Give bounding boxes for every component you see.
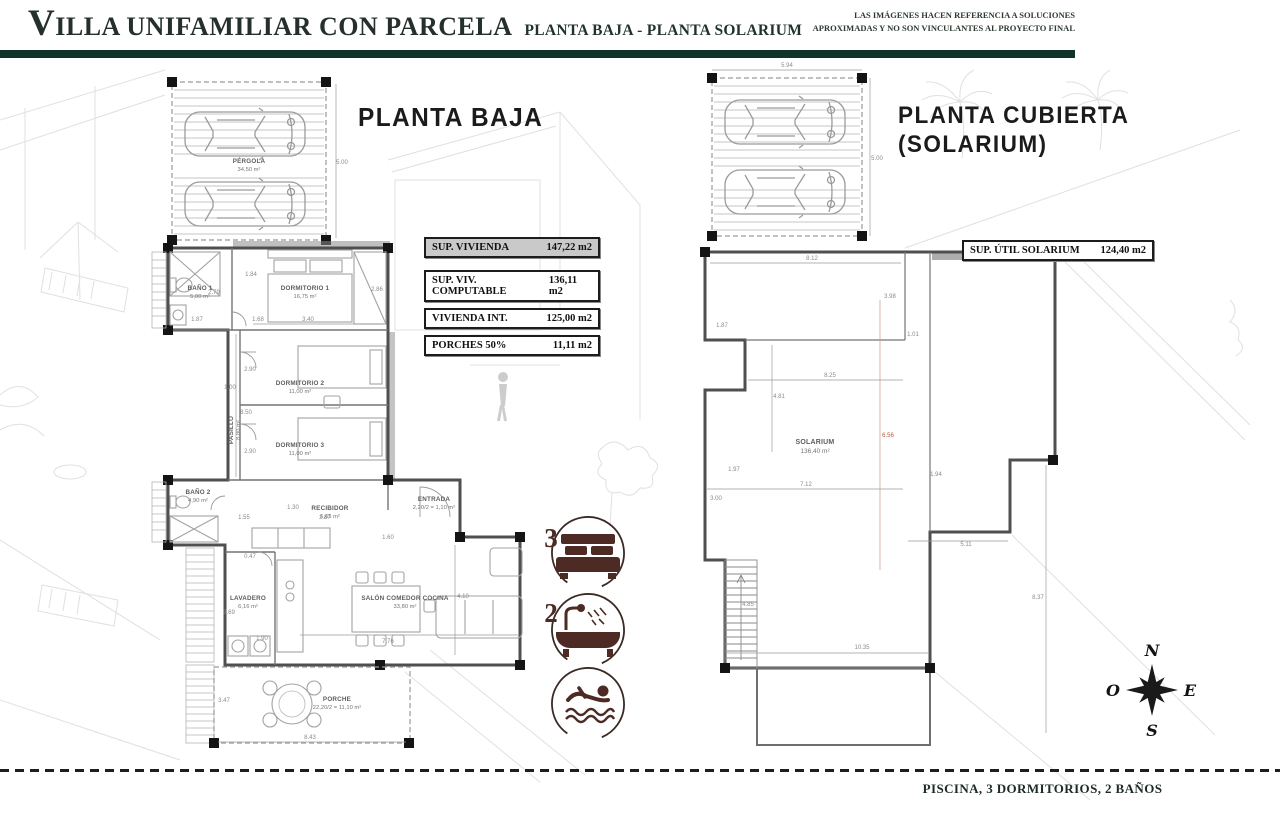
svg-text:8.50: 8.50 [240, 410, 252, 416]
svg-text:1.94: 1.94 [930, 472, 942, 478]
swimmer-icon [566, 686, 614, 723]
svg-text:7.12: 7.12 [800, 482, 812, 488]
carport-pergola-solarium [707, 70, 870, 241]
svg-text:1.68: 1.68 [252, 317, 264, 323]
svg-text:3.00: 3.00 [710, 496, 722, 502]
svg-text:8,80 m²: 8,80 m² [236, 420, 242, 440]
row-label: SUP. ÚTIL SOLARIUM [970, 245, 1080, 256]
compass-north: N [1144, 641, 1161, 660]
bed-icon [556, 534, 620, 579]
room-label: ENTRADA [418, 496, 450, 503]
svg-text:16,75 m²: 16,75 m² [294, 294, 317, 300]
bedrooms-count: 3 [544, 523, 558, 553]
car-icon [725, 96, 845, 148]
svg-text:6,16 m²: 6,16 m² [238, 604, 258, 610]
svg-text:2.86: 2.86 [371, 287, 383, 293]
svg-text:8.12: 8.12 [806, 256, 818, 262]
person-sketch [497, 372, 508, 421]
room-label: RECIBIDOR [311, 505, 348, 512]
dimension-lines [218, 324, 518, 742]
room-label: SALÓN COMEDOR COCINA [361, 593, 449, 602]
solarium-walls [700, 247, 1058, 745]
svg-text:8.37: 8.37 [1032, 595, 1044, 601]
compass-east: E [1183, 681, 1197, 700]
svg-text:6.56: 6.56 [882, 433, 894, 439]
svg-text:2.90: 2.90 [244, 367, 256, 373]
svg-text:2.90: 2.90 [244, 449, 256, 455]
svg-text:8.43: 8.43 [304, 735, 316, 741]
compass-south: S [1146, 721, 1158, 740]
title-initial: V [28, 3, 55, 44]
dimension-lines [707, 263, 1046, 733]
svg-text:10.35: 10.35 [854, 645, 870, 651]
svg-text:2.87: 2.87 [319, 515, 331, 521]
svg-text:5.94: 5.94 [781, 63, 793, 69]
room-label: DORMITORIO 2 [276, 380, 325, 387]
svg-text:5.00: 5.00 [871, 156, 883, 162]
feature-icons: 3 2 [538, 503, 638, 754]
disclaimer-line-1: LAS IMÁGENES HACEN REFERENCIA A SOLUCION… [775, 9, 1075, 22]
room-label: PASILLO [228, 416, 235, 444]
bathrooms-feature: 2 [538, 580, 638, 680]
row-value: 124,40 m2 [1101, 245, 1147, 256]
pool-feature [538, 654, 638, 754]
row-value: 136,11 m2 [549, 275, 592, 297]
svg-text:1.87: 1.87 [191, 317, 203, 323]
row-value: 147,22 m2 [547, 242, 593, 253]
row-label: PORCHES 50% [432, 340, 506, 351]
svg-text:1.97: 1.97 [728, 467, 740, 473]
svg-text:7.76: 7.76 [382, 639, 394, 645]
svg-text:3.98: 3.98 [884, 294, 896, 300]
solarium-title-line-2: (SOLARIUM) [898, 131, 1129, 160]
solarium-title: PLANTA CUBIERTA (SOLARIUM) [898, 102, 1129, 160]
svg-text:4,90 m²: 4,90 m² [188, 498, 208, 504]
svg-text:1.30: 1.30 [287, 505, 299, 511]
title-rest: ILLA UNIFAMILIAR CON PARCELA [55, 12, 512, 41]
room-label: DORMITORIO 1 [281, 285, 330, 292]
svg-text:3.40: 3.40 [302, 317, 314, 323]
row-label: VIVIENDA INT. [432, 313, 508, 324]
document-title: VILLA UNIFAMILIAR CON PARCELAPLANTA BAJA… [28, 4, 802, 44]
svg-text:136,40 m²: 136,40 m² [800, 448, 830, 455]
svg-text:5,00 m²: 5,00 m² [190, 294, 210, 300]
svg-text:5.11: 5.11 [960, 542, 972, 548]
solarium-plan: SOLARIUM 136,40 m² 5.94 5.00 8.12 3.98 1… [700, 63, 1058, 745]
svg-text:2.69: 2.69 [223, 610, 235, 616]
svg-text:2,20/2 = 1,10 m²: 2,20/2 = 1,10 m² [413, 505, 455, 511]
room-labels: SOLARIUM 136,40 m² [796, 439, 835, 455]
svg-text:4.81: 4.81 [773, 394, 785, 400]
car-icon [185, 108, 305, 160]
room-label: LAVADERO [230, 595, 266, 602]
table-row: SUP. VIVIENDA 147,22 m2 [424, 237, 600, 258]
row-value: 125,00 m2 [547, 313, 593, 324]
svg-text:3.47: 3.47 [218, 698, 230, 704]
svg-text:1.87: 1.87 [716, 323, 728, 329]
table-row: SUP. ÚTIL SOLARIUM 124,40 m2 [962, 240, 1154, 261]
bedrooms-feature: 3 [538, 503, 638, 603]
disclaimer-line-2: APROXIMADAS Y NO SON VINCULANTES AL PROY… [775, 22, 1075, 35]
footer-caption: PISCINA, 3 DORMITORIOS, 2 BAÑOS [900, 781, 1185, 797]
svg-text:22,20/2 = 11,10 m²: 22,20/2 = 11,10 m² [313, 705, 361, 711]
ground-floor-plan: PÉRGOLA 34,50 m² BAÑO 1 5,00 m² DORMITOR… [152, 77, 525, 748]
svg-text:8.25: 8.25 [824, 373, 836, 379]
row-value: 11,11 m2 [553, 340, 592, 351]
room-label: BAÑO 2 [186, 487, 211, 496]
svg-text:1.84: 1.84 [245, 272, 257, 278]
room-label: DORMITORIO 3 [276, 442, 325, 449]
svg-text:34,50 m²: 34,50 m² [238, 167, 261, 173]
stairs [725, 560, 757, 668]
solarium-title-line-1: PLANTA CUBIERTA [898, 102, 1129, 131]
svg-text:4.10: 4.10 [457, 594, 469, 600]
background-sketch [0, 70, 1250, 800]
room-label: PÉRGOLA [233, 156, 266, 165]
ground-floor-title: PLANTA BAJA [358, 102, 543, 133]
svg-text:1.60: 1.60 [382, 535, 394, 541]
compass-rose: N E S O [1106, 641, 1197, 740]
footer-divider [0, 769, 1280, 772]
svg-text:11,00 m²: 11,00 m² [289, 451, 312, 457]
row-label: SUP. VIVIENDA [432, 242, 509, 253]
disclaimer: LAS IMÁGENES HACEN REFERENCIA A SOLUCION… [775, 9, 1075, 35]
compass-west: O [1106, 681, 1120, 700]
svg-text:1.01: 1.01 [907, 332, 919, 338]
svg-text:11,00 m²: 11,00 m² [289, 389, 312, 395]
header-rule [0, 50, 1075, 58]
svg-text:0.47: 0.47 [244, 554, 256, 560]
svg-text:33,80 m²: 33,80 m² [394, 604, 417, 610]
bath-icon [556, 604, 620, 657]
document-subtitle: PLANTA BAJA - PLANTA SOLARIUM [524, 22, 802, 39]
bathrooms-count: 2 [544, 598, 558, 628]
room-label: PORCHE [323, 696, 351, 703]
table-row: SUP. VIV. COMPUTABLE 136,11 m2 [424, 270, 600, 302]
table-row: VIVIENDA INT. 125,00 m2 [424, 308, 600, 329]
svg-text:1.00: 1.00 [224, 385, 236, 391]
svg-text:1.55: 1.55 [238, 515, 250, 521]
row-label: SUP. VIV. COMPUTABLE [432, 275, 549, 297]
svg-text:5.00: 5.00 [336, 160, 348, 166]
room-label: SOLARIUM [796, 439, 835, 446]
table-row: PORCHES 50% 11,11 m2 [424, 335, 600, 356]
svg-text:1.90: 1.90 [256, 636, 268, 642]
solarium-area-table: SUP. ÚTIL SOLARIUM 124,40 m2 [962, 240, 1154, 261]
svg-text:2.79: 2.79 [208, 290, 220, 296]
car-icon [725, 166, 845, 218]
svg-text:4.85: 4.85 [742, 602, 754, 608]
areas-table: SUP. VIVIENDA 147,22 m2 SUP. VIV. COMPUT… [424, 237, 600, 356]
